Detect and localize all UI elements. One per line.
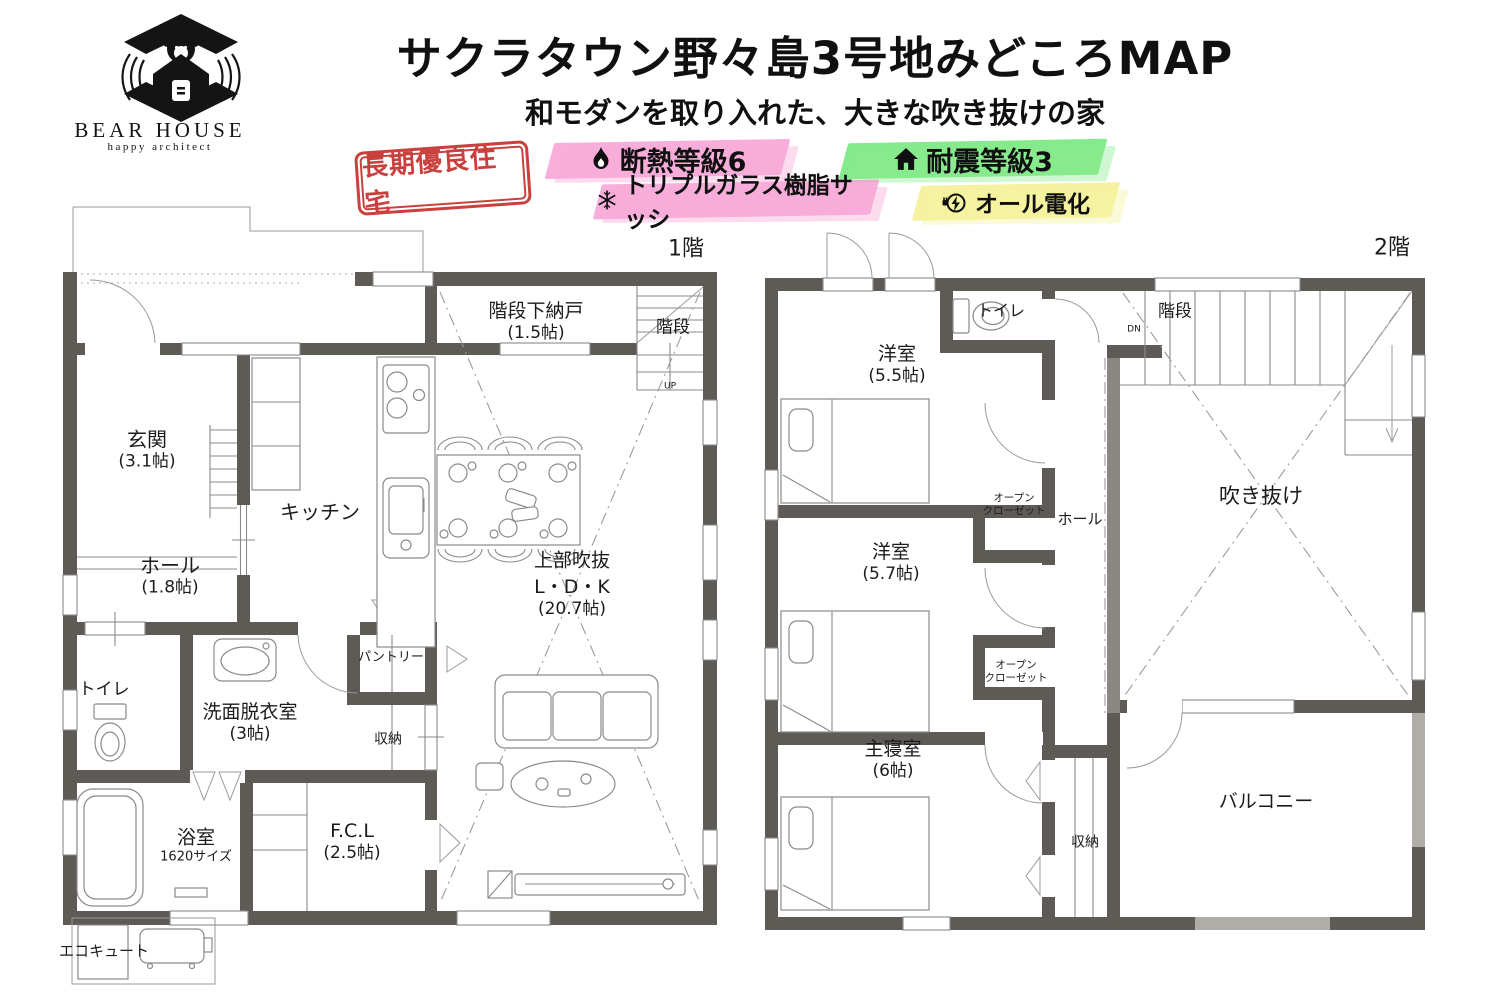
room-label-stair-storage: 階段下納戸(1.5帖)	[488, 300, 583, 344]
floorplan-poster: BEAR HOUSE happy architect サクラタウン野々島3号地み…	[0, 0, 1500, 1000]
page-title: サクラタウン野々島3号地みどころMAP	[320, 22, 1310, 87]
casement-window-arc-1	[827, 233, 872, 278]
washbasin	[214, 639, 276, 681]
toilet-fixture-1f	[94, 704, 126, 761]
dining-table	[437, 437, 582, 562]
sofa	[495, 675, 658, 748]
ldk-door-mark	[447, 646, 467, 672]
closet-folding-door-1	[1026, 762, 1040, 800]
badge-triple-glass: トリプルガラス樹脂サッシ	[597, 181, 875, 218]
stamp-text: 長期優良住宅	[359, 145, 526, 210]
badge-label: トリプルガラス樹脂サッシ	[624, 166, 875, 234]
page-subtitle: 和モダンを取り入れた、大きな吹き抜けの家	[320, 90, 1310, 132]
entrance-door-arc	[90, 280, 155, 343]
room-label-stairs1: 階段	[656, 318, 690, 339]
room-label-storage1: 収納	[374, 731, 402, 748]
badge-label: オール電化	[975, 185, 1090, 219]
plug-bolt-icon	[942, 190, 968, 214]
room-label-washroom: 洗面脱衣室(3帖)	[202, 701, 297, 745]
bear-house-logo-icon	[88, 12, 298, 128]
room-label-master: 主寝室(6帖)	[864, 738, 921, 782]
room-label-ecocute: エコキュート	[59, 942, 149, 960]
room-label-toilet2: トイレ	[977, 301, 1025, 321]
room-label-open-closet1: オープンクローゼット	[983, 492, 1046, 518]
room-label-kitchen: キッチン	[280, 500, 360, 524]
room-label-open-closet2: オープンクローゼット	[985, 659, 1048, 685]
bed-57	[781, 611, 929, 732]
house-icon	[893, 147, 919, 171]
quality-housing-stamp: 長期優良住宅	[354, 140, 532, 216]
room-label-hall2: ホール	[1057, 510, 1102, 528]
void-railing-wall	[1105, 358, 1120, 713]
balcony-door-arc	[1127, 713, 1182, 768]
casement-window-arc-2	[889, 233, 934, 278]
room-label-bedroom55: 洋室(5.5帖)	[868, 343, 925, 387]
bedroom55-door-arc	[985, 403, 1045, 463]
room-label-storage2: 収納	[1071, 834, 1099, 851]
tv-board	[488, 871, 685, 898]
floor2-label: 2階	[1374, 236, 1410, 263]
room-label-toilet1: トイレ	[79, 680, 130, 701]
badge-earthquake: 耐震等級3	[843, 140, 1103, 178]
room-label-pantry: パントリー	[358, 650, 424, 666]
badge-label: 耐震等級3	[926, 140, 1053, 179]
room-label-ldk: L・D・K(20.7帖)	[534, 576, 610, 620]
room-label-bedroom57: 洋室(5.7帖)	[862, 541, 919, 585]
shoe-cabinet	[252, 358, 300, 490]
bedroom57-door-arc	[985, 568, 1045, 628]
bed-master	[781, 797, 929, 910]
room-label-void-note: 上部吹抜	[534, 549, 610, 572]
snowflake-icon	[597, 189, 617, 211]
room-label-balcony: バルコニー	[1219, 790, 1314, 813]
toilet2-door-arc	[1055, 299, 1099, 343]
kitchen-counter	[377, 357, 435, 647]
master-door-arc	[985, 745, 1043, 803]
logo-name: BEAR HOUSE	[55, 118, 265, 143]
room-label-fcl: F.C.L(2.5帖)	[323, 820, 380, 864]
fcl-door-mark	[440, 824, 460, 862]
flame-icon	[589, 146, 613, 172]
room-label-stairs2: 階段	[1158, 302, 1192, 323]
bed-55	[781, 399, 929, 503]
badge-all-electric: オール電化	[916, 183, 1116, 220]
floor1-label: 1階	[668, 237, 704, 264]
stairs1-up-mark: UP	[664, 382, 676, 393]
room-label-void2: 吹き抜け	[1219, 484, 1303, 510]
room-label-bath: 浴室1620サイズ	[160, 826, 232, 865]
coffee-table	[476, 761, 615, 807]
stairs2-dn-mark: DN	[1127, 325, 1141, 336]
room-label-genkan: 玄関(3.1帖)	[118, 427, 175, 472]
logo-tagline: happy architect	[55, 141, 265, 153]
closet-folding-door-2	[1026, 857, 1040, 895]
room-label-hall1: ホール(1.8帖)	[140, 553, 200, 598]
